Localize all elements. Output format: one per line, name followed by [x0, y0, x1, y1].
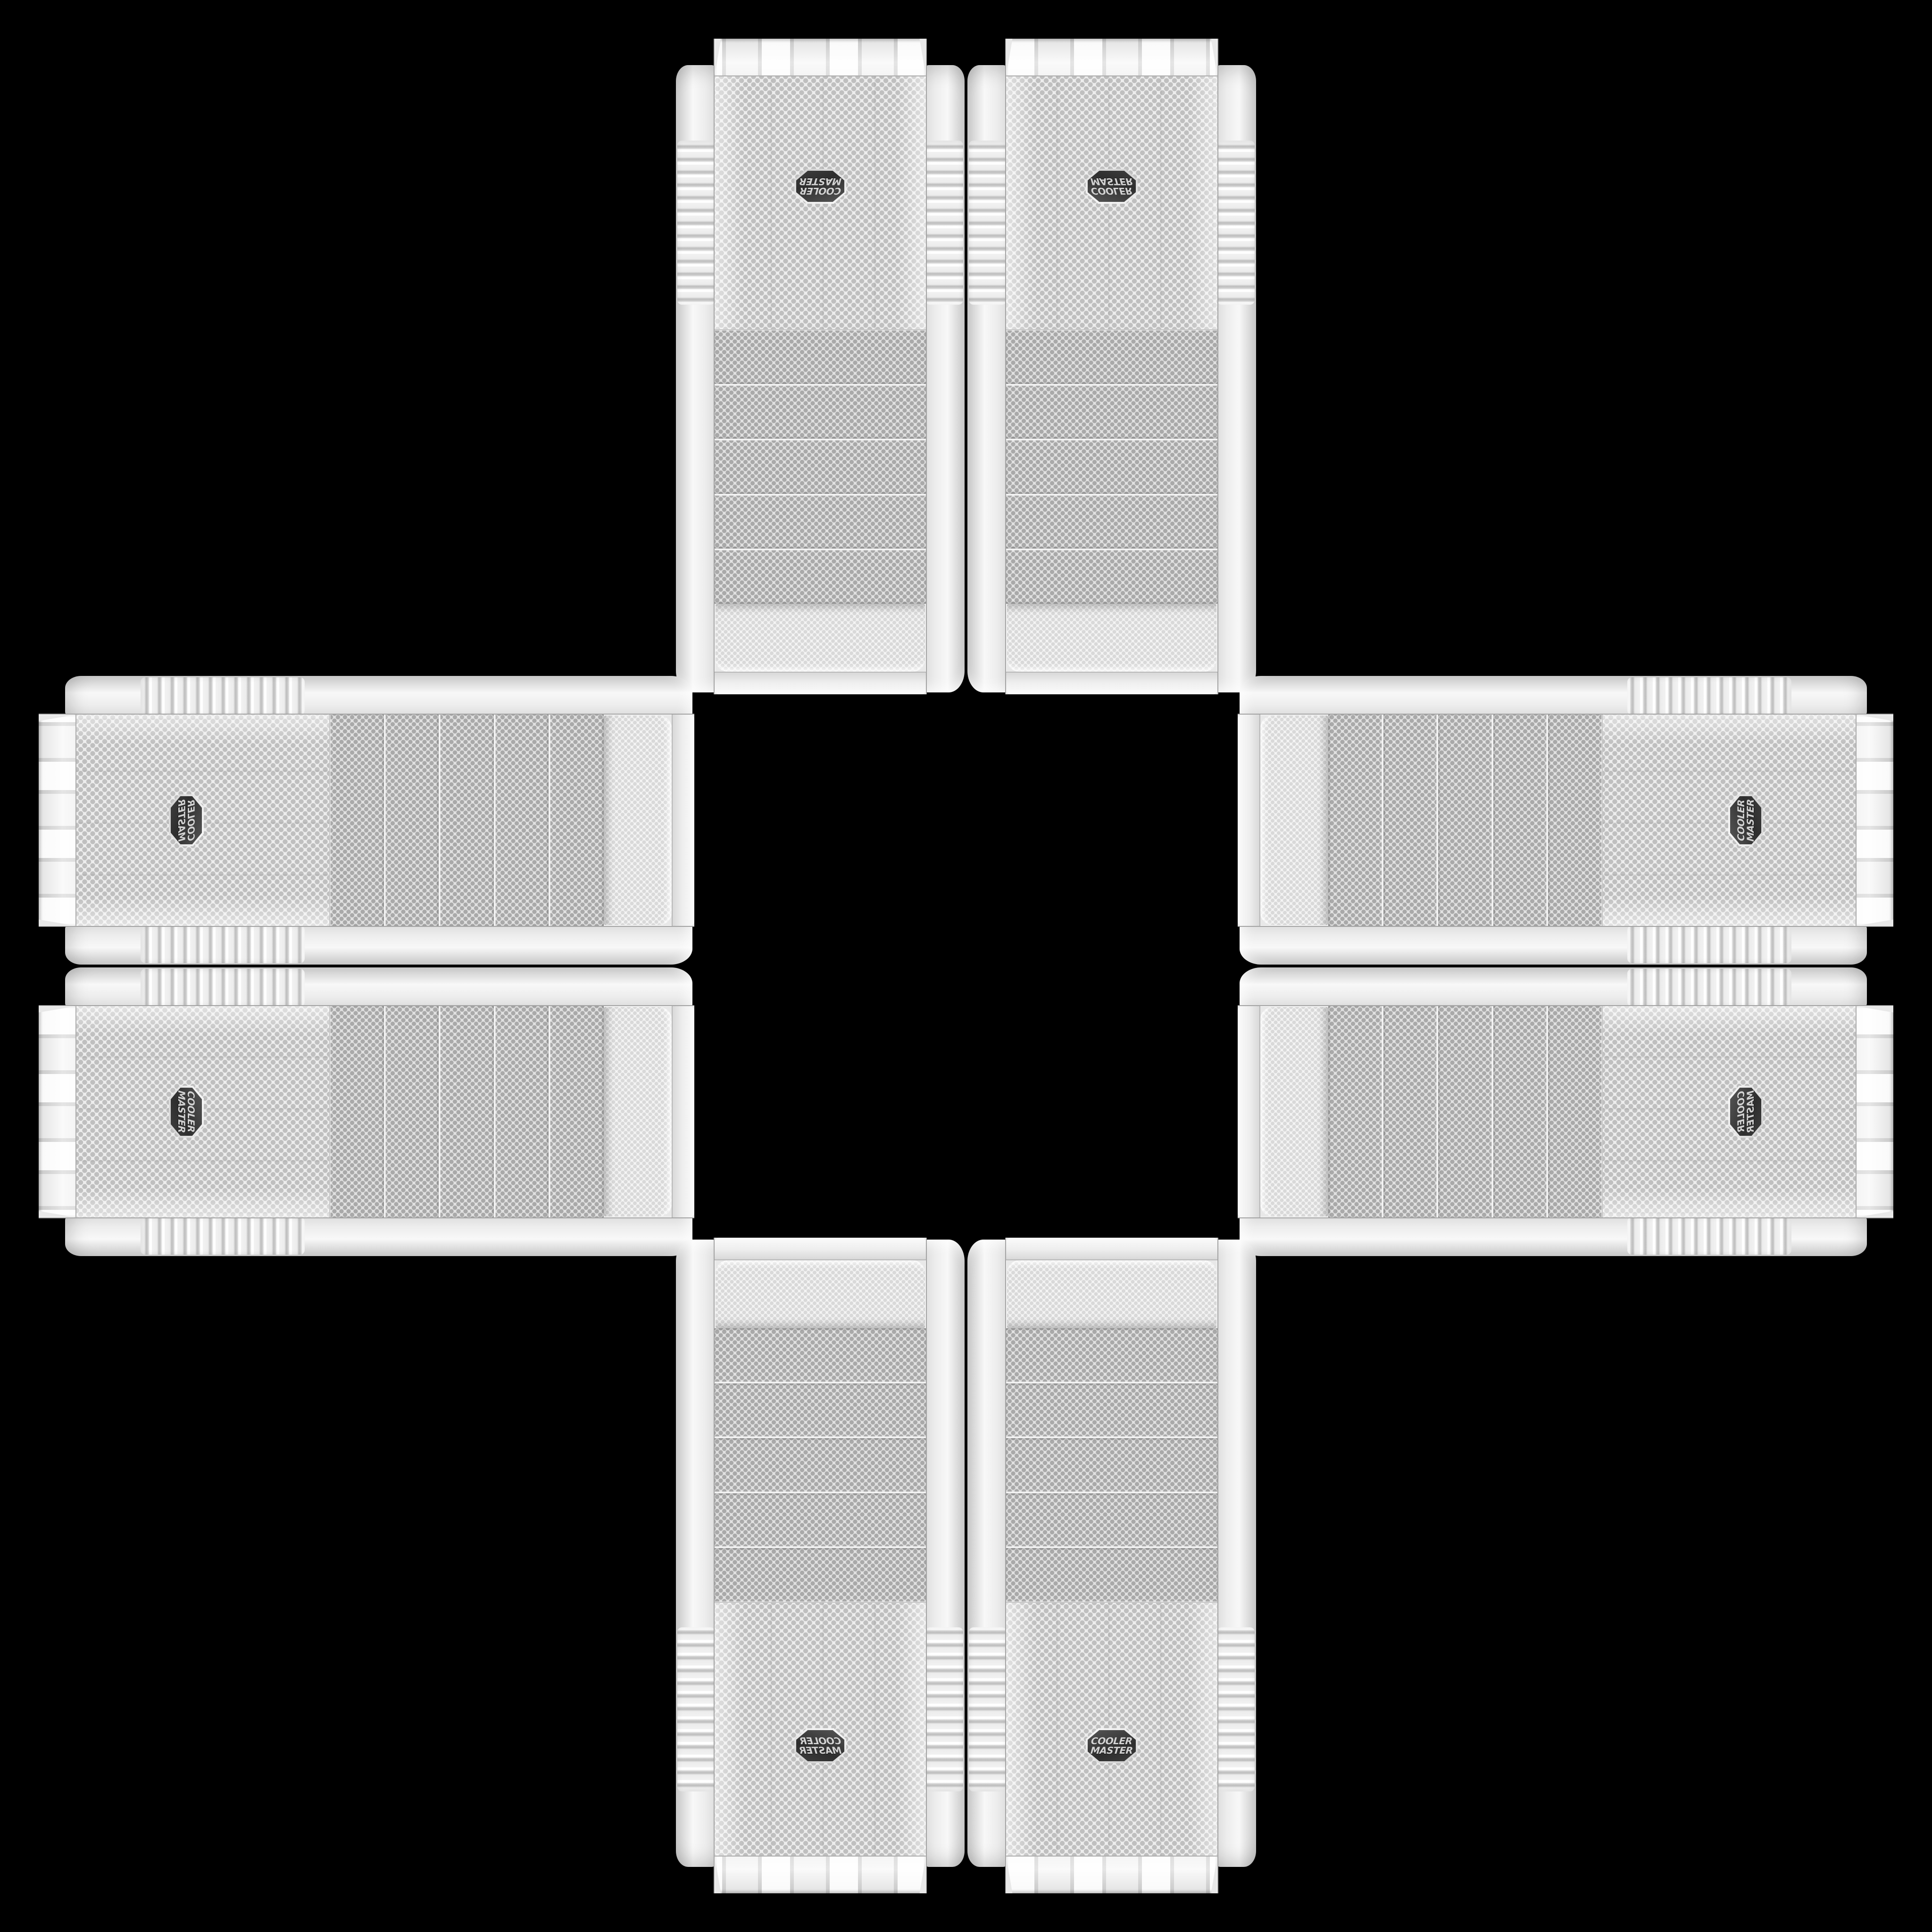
case-side-rail-left	[967, 65, 1008, 692]
front-mesh-bulge	[604, 1007, 672, 1216]
front-mesh-bulge	[1260, 716, 1328, 925]
case-left-bottom: COOLER MASTER	[36, 967, 696, 1256]
badge-text-line2: MASTER	[1090, 177, 1133, 186]
front-mesh-bulge	[716, 604, 925, 672]
case-right-bottom: COOLER MASTER	[1236, 967, 1896, 1256]
case-side-rail-left	[65, 967, 692, 1008]
drive-bay-cover	[1547, 715, 1602, 926]
front-top-cap	[1006, 1238, 1217, 1260]
cooler-master-badge-icon: COOLER MASTER	[794, 1728, 846, 1763]
front-bottom-cap	[1856, 715, 1893, 926]
front-mesh-bulge	[604, 716, 672, 925]
badge-text-line1: COOLER	[186, 799, 196, 841]
drive-bay-cover	[715, 1328, 926, 1382]
drive-bay-cover	[715, 1382, 926, 1437]
front-bottom-cap	[39, 1006, 76, 1217]
front-mesh-bulge	[1007, 1260, 1216, 1328]
badge-text-line2: MASTER	[799, 1746, 841, 1755]
cooler-master-badge-icon: COOLER MASTER	[169, 1086, 204, 1138]
case-side-rail-right	[1240, 1216, 1867, 1256]
drive-bay-cover	[330, 715, 385, 926]
cooler-master-badge-icon: COOLER MASTER	[169, 794, 204, 846]
cooler-master-badge-plate: COOLER MASTER	[1730, 796, 1761, 844]
drive-bay-stack	[330, 715, 604, 926]
drive-bay-cover	[1492, 1006, 1547, 1217]
cooler-master-badge-plate: COOLER MASTER	[1088, 1730, 1136, 1761]
front-bottom-cap	[715, 1856, 926, 1893]
front-top-cap	[1006, 672, 1217, 694]
case-front-bezel: COOLER MASTER	[714, 39, 927, 694]
drive-bay-stack	[715, 330, 926, 604]
drive-bay-cover	[715, 330, 926, 385]
drive-bay-cover	[550, 1006, 604, 1217]
rail-vent-ribs	[141, 969, 305, 1007]
case-side-rail-right	[676, 1240, 716, 1867]
front-top-cap	[672, 1006, 694, 1217]
case-bottom-left: COOLER MASTER	[676, 1236, 965, 1896]
rail-vent-ribs	[677, 141, 715, 305]
case-top-left: COOLER MASTER	[676, 36, 965, 696]
cooler-master-badge-plate: COOLER MASTER	[171, 796, 202, 844]
badge-text-line1: COOLER	[1736, 799, 1746, 841]
drive-bay-cover	[495, 715, 550, 926]
case-side-rail-right	[1216, 65, 1256, 692]
rail-vent-ribs	[925, 141, 963, 305]
drive-bay-cover	[385, 1006, 441, 1217]
drive-bay-cover	[1328, 1006, 1382, 1217]
drive-bay-stack	[1328, 1006, 1602, 1217]
drive-bay-cover	[1006, 1328, 1217, 1382]
front-top-cap	[672, 715, 694, 926]
rail-vent-ribs	[1627, 925, 1791, 963]
drive-bay-cover	[440, 715, 495, 926]
case-side-rail-left	[924, 1240, 965, 1867]
case-right-top: COOLER MASTER	[1236, 676, 1896, 965]
case-side-rail-right	[65, 1216, 692, 1256]
case-side-rail-right	[1240, 676, 1867, 716]
case-left-top: COOLER MASTER	[36, 676, 696, 965]
rail-vent-ribs	[1627, 1217, 1791, 1255]
drive-bay-cover	[715, 1437, 926, 1492]
badge-text-line2: MASTER	[177, 799, 186, 841]
badge-text-line1: COOLER	[1736, 1091, 1746, 1133]
badge-text-line2: MASTER	[1746, 799, 1755, 841]
cooler-master-badge-icon: COOLER MASTER	[794, 169, 846, 204]
drive-bay-cover	[1006, 1492, 1217, 1547]
drive-bay-cover	[1382, 715, 1437, 926]
front-mesh-bulge	[1260, 1007, 1328, 1216]
front-top-cap	[1238, 715, 1260, 926]
case-front-bezel: COOLER MASTER	[1005, 1238, 1218, 1893]
drive-bay-cover	[1437, 715, 1492, 926]
badge-text-line1: COOLER	[799, 1736, 841, 1746]
cooler-master-badge-plate: COOLER MASTER	[796, 171, 844, 202]
rail-vent-ribs	[1627, 677, 1791, 715]
rail-vent-ribs	[141, 677, 305, 715]
case-front-bezel: COOLER MASTER	[1005, 39, 1218, 694]
drive-bay-cover	[1006, 1382, 1217, 1437]
drive-bay-cover	[1006, 1547, 1217, 1602]
drive-bay-cover	[715, 495, 926, 550]
drive-bay-cover	[715, 1492, 926, 1547]
case-side-rail-left	[65, 924, 692, 965]
front-fan-mesh: COOLER MASTER	[76, 1006, 330, 1217]
case-top-right: COOLER MASTER	[967, 36, 1256, 696]
rail-vent-ribs	[141, 1217, 305, 1255]
case-front-bezel: COOLER MASTER	[39, 1005, 694, 1218]
cooler-master-badge-icon: COOLER MASTER	[1728, 794, 1763, 846]
cooler-master-badge-plate: COOLER MASTER	[1088, 171, 1136, 202]
drive-bay-cover	[495, 1006, 550, 1217]
drive-bay-cover	[440, 1006, 495, 1217]
case-side-rail-left	[967, 1240, 1008, 1867]
drive-bay-cover	[715, 385, 926, 441]
rail-vent-ribs	[1217, 141, 1255, 305]
case-collage: COOLER MASTER	[0, 0, 1932, 1932]
rail-vent-ribs	[1627, 969, 1791, 1007]
case-front-bezel: COOLER MASTER	[1238, 1005, 1893, 1218]
drive-bay-stack	[330, 1006, 604, 1217]
badge-text-line2: MASTER	[1746, 1090, 1755, 1133]
case-side-rail-right	[676, 65, 716, 692]
case-side-rail-left	[1240, 924, 1867, 965]
front-fan-mesh: COOLER MASTER	[715, 76, 926, 330]
drive-bay-cover	[1382, 1006, 1437, 1217]
front-bottom-cap	[39, 715, 76, 926]
front-mesh-bulge	[1007, 604, 1216, 672]
front-fan-mesh: COOLER MASTER	[1006, 76, 1217, 330]
badge-text-line1: COOLER	[799, 186, 841, 196]
drive-bay-cover	[1006, 385, 1217, 441]
drive-bay-cover	[330, 1006, 385, 1217]
drive-bay-cover	[715, 550, 926, 604]
front-fan-mesh: COOLER MASTER	[76, 715, 330, 926]
rail-vent-ribs	[925, 1627, 963, 1791]
case-bottom-right: COOLER MASTER	[967, 1236, 1256, 1896]
drive-bay-cover	[1006, 1437, 1217, 1492]
case-front-bezel: COOLER MASTER	[1238, 714, 1893, 927]
badge-text-line1: COOLER	[1091, 186, 1133, 196]
case-front-bezel: COOLER MASTER	[39, 714, 694, 927]
front-bottom-cap	[715, 39, 926, 76]
badge-text-line2: MASTER	[177, 1090, 186, 1133]
front-fan-mesh: COOLER MASTER	[715, 1602, 926, 1856]
rail-vent-ribs	[1217, 1627, 1255, 1791]
front-top-cap	[715, 1238, 926, 1260]
cooler-master-badge-plate: COOLER MASTER	[171, 1088, 202, 1136]
front-top-cap	[1238, 1006, 1260, 1217]
case-side-rail-left	[1240, 967, 1867, 1008]
rail-vent-ribs	[141, 925, 305, 963]
drive-bay-cover	[715, 440, 926, 495]
front-bottom-cap	[1006, 1856, 1217, 1893]
drive-bay-cover	[385, 715, 441, 926]
drive-bay-stack	[715, 1328, 926, 1602]
drive-bay-cover	[1492, 715, 1547, 926]
badge-text-line1: COOLER	[186, 1091, 196, 1133]
drive-bay-cover	[1006, 330, 1217, 385]
drive-bay-stack	[1006, 1328, 1217, 1602]
front-mesh-bulge	[716, 1260, 925, 1328]
drive-bay-stack	[1006, 330, 1217, 604]
case-side-rail-left	[924, 65, 965, 692]
case-side-rail-right	[1216, 1240, 1256, 1867]
rail-vent-ribs	[969, 1627, 1007, 1791]
rail-vent-ribs	[677, 1627, 715, 1791]
front-top-cap	[715, 672, 926, 694]
drive-bay-cover	[1328, 715, 1382, 926]
drive-bay-stack	[1328, 715, 1602, 926]
drive-bay-cover	[1006, 440, 1217, 495]
cooler-master-badge-plate: COOLER MASTER	[1730, 1088, 1761, 1136]
drive-bay-cover	[1437, 1006, 1492, 1217]
badge-text-line2: MASTER	[799, 177, 841, 186]
case-front-bezel: COOLER MASTER	[714, 1238, 927, 1893]
drive-bay-cover	[1006, 550, 1217, 604]
front-bottom-cap	[1856, 1006, 1893, 1217]
drive-bay-cover	[1547, 1006, 1602, 1217]
front-bottom-cap	[1006, 39, 1217, 76]
drive-bay-cover	[550, 715, 604, 926]
rail-vent-ribs	[969, 141, 1007, 305]
drive-bay-cover	[715, 1547, 926, 1602]
cooler-master-badge-plate: COOLER MASTER	[796, 1730, 844, 1761]
badge-text-line2: MASTER	[1090, 1746, 1133, 1755]
front-fan-mesh: COOLER MASTER	[1602, 715, 1856, 926]
cooler-master-badge-icon: COOLER MASTER	[1086, 169, 1138, 204]
drive-bay-cover	[1006, 495, 1217, 550]
case-side-rail-right	[65, 676, 692, 716]
cooler-master-badge-icon: COOLER MASTER	[1086, 1728, 1138, 1763]
front-fan-mesh: COOLER MASTER	[1006, 1602, 1217, 1856]
badge-text-line1: COOLER	[1091, 1736, 1133, 1746]
front-fan-mesh: COOLER MASTER	[1602, 1006, 1856, 1217]
cooler-master-badge-icon: COOLER MASTER	[1728, 1086, 1763, 1138]
